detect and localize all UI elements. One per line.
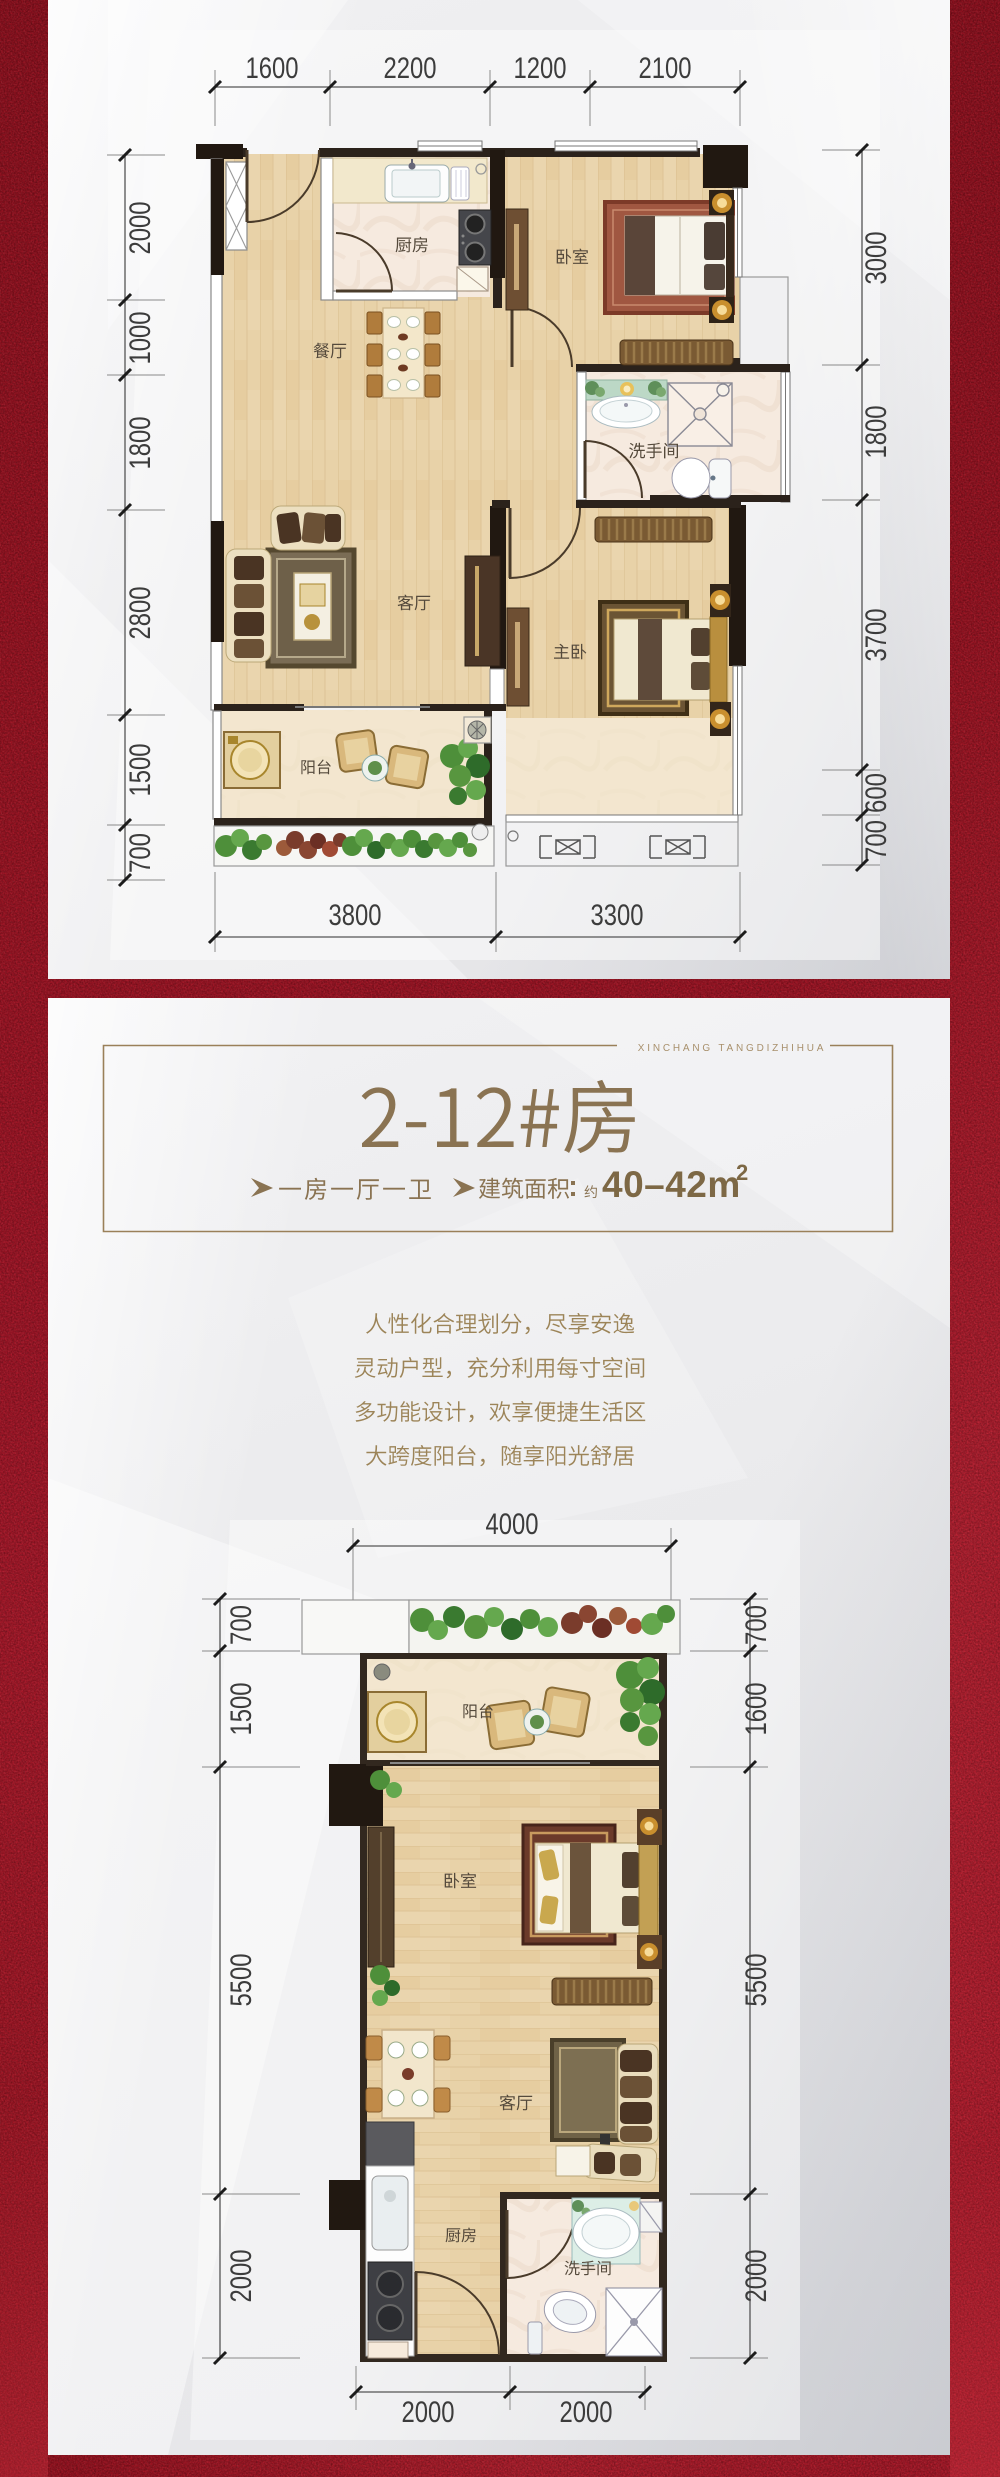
svg-text:1600: 1600 (246, 52, 299, 85)
svg-text:2000: 2000 (124, 202, 157, 255)
svg-text:1800: 1800 (124, 417, 157, 470)
svg-text:1800: 1800 (860, 406, 893, 459)
svg-text:1200: 1200 (514, 52, 567, 85)
svg-text:3300: 3300 (591, 899, 644, 932)
svg-text:1600: 1600 (740, 1683, 773, 1736)
svg-text:1000: 1000 (124, 312, 157, 365)
svg-text:4000: 4000 (486, 1508, 539, 1541)
svg-text:2: 2 (736, 1160, 748, 1185)
svg-text:700: 700 (225, 1605, 258, 1645)
svg-text:2000: 2000 (402, 2396, 455, 2429)
svg-text:XINCHANG TANGDIZHIHUA: XINCHANG TANGDIZHIHUA (638, 1043, 826, 1054)
svg-text:600: 600 (860, 773, 893, 813)
svg-text:2000: 2000 (740, 2250, 773, 2303)
svg-text:700: 700 (124, 833, 157, 873)
svg-text:2100: 2100 (639, 52, 692, 85)
svg-text:3800: 3800 (329, 899, 382, 932)
svg-text:2000: 2000 (560, 2396, 613, 2429)
svg-text:5500: 5500 (740, 1954, 773, 2007)
svg-text:1500: 1500 (124, 744, 157, 797)
svg-text:2800: 2800 (124, 587, 157, 640)
svg-text:40–42m: 40–42m (602, 1164, 741, 1205)
svg-text:3700: 3700 (860, 609, 893, 662)
svg-text:2000: 2000 (225, 2250, 258, 2303)
svg-text:700: 700 (740, 1605, 773, 1645)
svg-text:3000: 3000 (860, 232, 893, 285)
svg-text:2200: 2200 (384, 52, 437, 85)
svg-text:700: 700 (860, 820, 893, 860)
svg-text:1500: 1500 (225, 1683, 258, 1736)
svg-text:5500: 5500 (225, 1954, 258, 2007)
